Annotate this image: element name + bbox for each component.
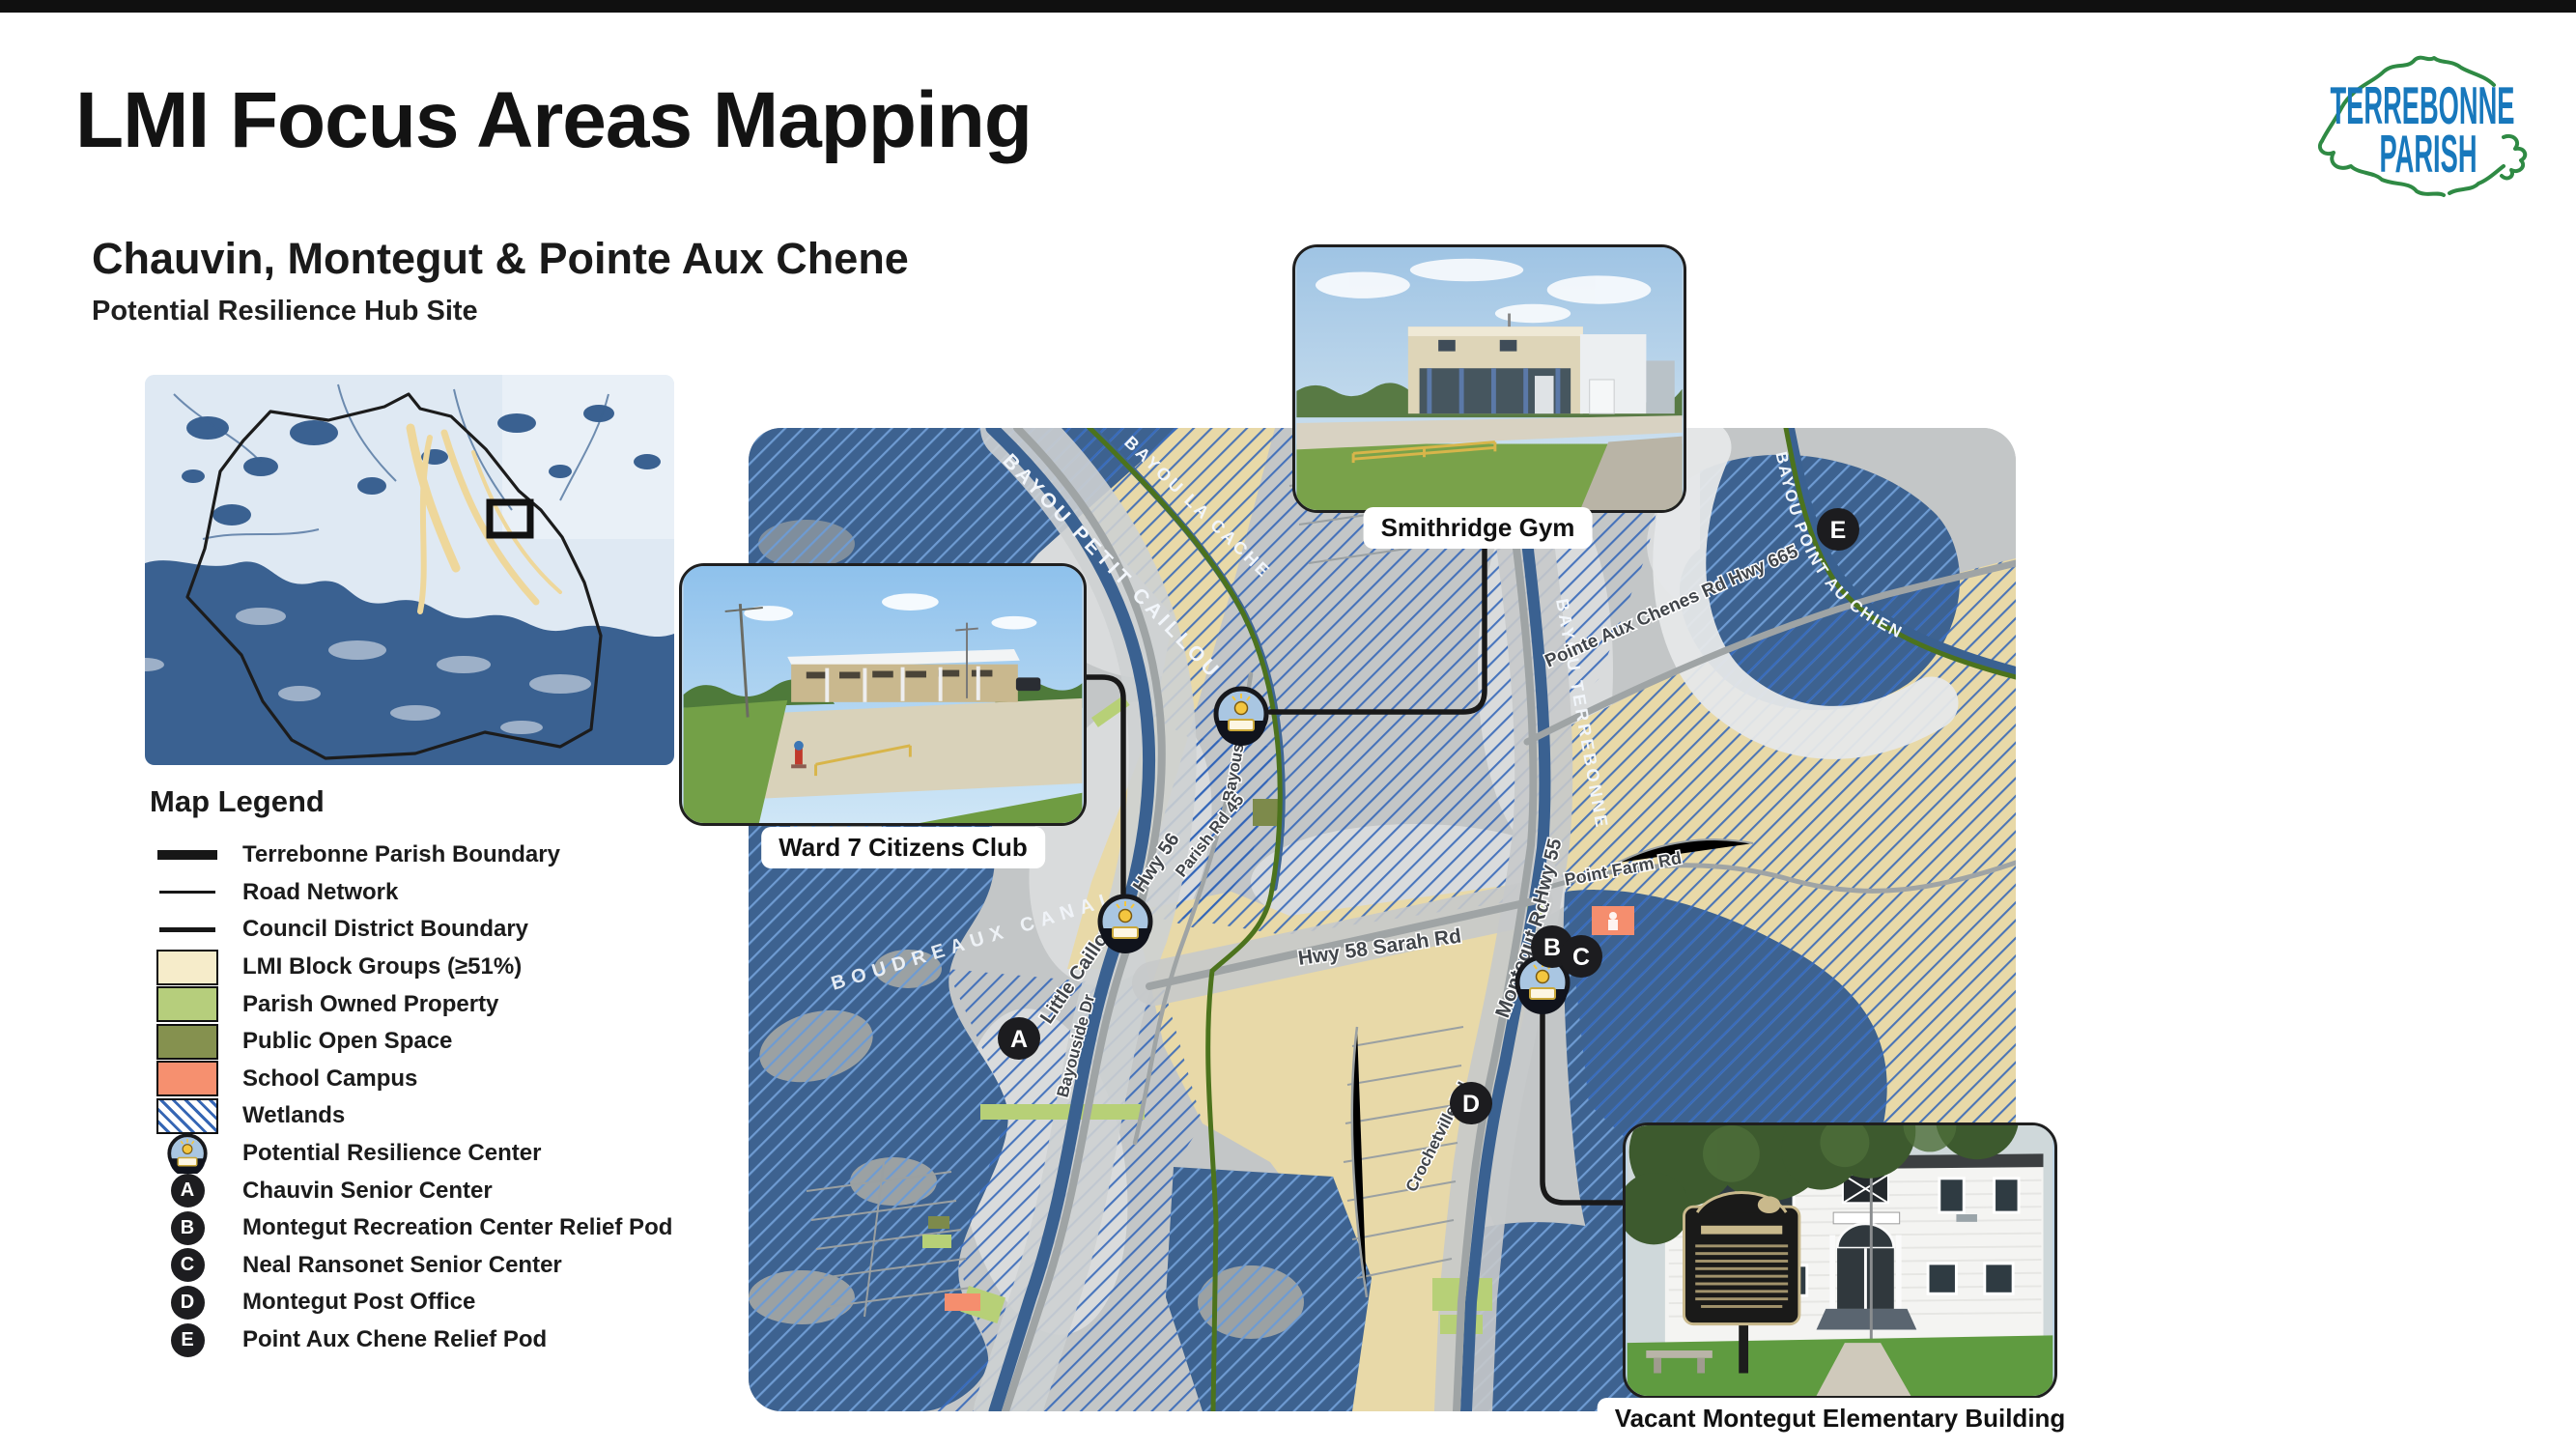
marker-e: E bbox=[1817, 508, 1859, 551]
legend-item-a: A Chauvin Senior Center bbox=[150, 1172, 749, 1209]
callout-photo-smithridge-gym bbox=[1292, 244, 1686, 513]
historical-marker-sign bbox=[1684, 1193, 1798, 1324]
svg-text:C: C bbox=[1572, 944, 1590, 971]
marker-c: C bbox=[1560, 935, 1602, 978]
svg-text:B: B bbox=[1543, 934, 1561, 961]
map-legend: Map Legend Terrebonne Parish Boundary Ro… bbox=[150, 784, 749, 1358]
resilience-center-icon bbox=[1216, 689, 1266, 746]
legend-title: Map Legend bbox=[150, 784, 749, 819]
legend-item-road-network: Road Network bbox=[150, 874, 749, 912]
montegut-elementary-illustration bbox=[1626, 1125, 2054, 1396]
marker-a: A bbox=[998, 1017, 1040, 1060]
thick-line-swatch bbox=[157, 850, 217, 860]
brand-logo: TERREBONNE PARISH bbox=[2314, 48, 2534, 201]
svg-text:A: A bbox=[1010, 1026, 1028, 1053]
section-heading: Chauvin, Montegut & Pointe Aux Chene bbox=[92, 234, 909, 284]
marker-d-swatch: D bbox=[171, 1286, 205, 1320]
smithridge-gym-illustration bbox=[1295, 247, 1684, 510]
legend-item-school: School Campus bbox=[150, 1061, 749, 1098]
thin-line-swatch bbox=[159, 891, 215, 894]
marker-a-swatch: A bbox=[171, 1174, 205, 1207]
legend-item-e: E Point Aux Chene Relief Pod bbox=[150, 1321, 749, 1359]
callout-label-montegut-elementary: Vacant Montegut Elementary Building bbox=[1598, 1398, 2083, 1439]
legend-item-open-space: Public Open Space bbox=[150, 1023, 749, 1061]
legend-item-b: B Montegut Recreation Center Relief Pod bbox=[150, 1209, 749, 1247]
school-swatch bbox=[156, 1061, 218, 1096]
page-root: LMI Focus Areas Mapping TERREBONNE PARIS… bbox=[0, 0, 2576, 1449]
resilience-center-icon bbox=[1100, 896, 1150, 953]
lmi-swatch bbox=[156, 950, 218, 985]
legend-item-council-boundary: Council District Boundary bbox=[150, 911, 749, 949]
callout-label-smithridge-gym: Smithridge Gym bbox=[1364, 507, 1593, 549]
marker-e-swatch: E bbox=[171, 1323, 205, 1357]
legend-item-resilience-center: Potential Resilience Center bbox=[150, 1135, 749, 1173]
top-bar bbox=[0, 0, 2576, 13]
inset-map bbox=[145, 375, 674, 765]
marker-d: D bbox=[1450, 1082, 1492, 1124]
ward7-citizens-club-illustration bbox=[682, 566, 1084, 823]
wetlands-swatch bbox=[156, 1098, 218, 1134]
svg-text:D: D bbox=[1462, 1091, 1480, 1118]
brand-name-line2: PARISH bbox=[2379, 126, 2477, 185]
legend-item-d: D Montegut Post Office bbox=[150, 1284, 749, 1321]
callout-photo-montegut-elementary bbox=[1623, 1122, 2057, 1399]
open-space-swatch bbox=[156, 1024, 218, 1060]
section-subheading: Potential Resilience Hub Site bbox=[92, 296, 478, 327]
parish-property-swatch bbox=[156, 986, 218, 1022]
medium-line-swatch bbox=[159, 927, 215, 932]
legend-item-c: C Neal Ransonet Senior Center bbox=[150, 1247, 749, 1285]
legend-item-parish-property: Parish Owned Property bbox=[150, 985, 749, 1023]
marker-b-swatch: B bbox=[171, 1211, 205, 1245]
legend-item-wetlands: Wetlands bbox=[150, 1097, 749, 1135]
parish-outline-icon: TERREBONNE PARISH bbox=[2314, 48, 2534, 201]
legend-item-parish-boundary: Terrebonne Parish Boundary bbox=[150, 837, 749, 874]
resilience-center-icon bbox=[167, 1133, 208, 1174]
legend-item-lmi: LMI Block Groups (≥51%) bbox=[150, 949, 749, 986]
marker-c-swatch: C bbox=[171, 1248, 205, 1282]
svg-text:E: E bbox=[1830, 517, 1847, 544]
callout-photo-ward7-citizens-club bbox=[679, 563, 1087, 826]
callout-label-ward7-citizens-club: Ward 7 Citizens Club bbox=[761, 827, 1045, 868]
page-title: LMI Focus Areas Mapping bbox=[75, 75, 1032, 166]
